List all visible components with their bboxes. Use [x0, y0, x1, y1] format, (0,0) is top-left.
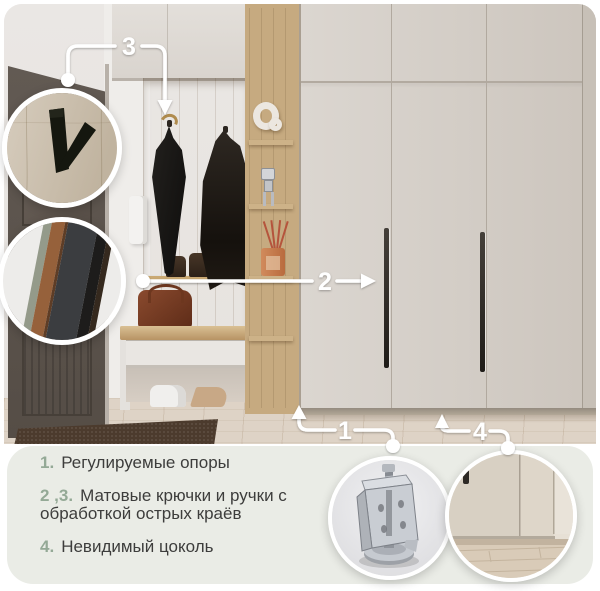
robot-figurine: [264, 180, 273, 192]
plinth-image: [449, 454, 573, 578]
legend-list: 1.Регулируемые опоры 2 ,3.Матовые крючки…: [40, 454, 290, 556]
product-infographic: 1.Регулируемые опоры 2 ,3.Матовые крючки…: [0, 0, 600, 591]
legend-text-2-3: Матовые крючки и ручки с обработкой остр…: [40, 486, 287, 523]
under-bench-shadow: [126, 368, 249, 402]
handle-edge-image: [3, 222, 121, 340]
intercom: [129, 196, 147, 244]
legend-text-4: Невидимый цоколь: [61, 537, 213, 556]
legend-item-1: 1.Регулируемые опоры: [40, 454, 290, 472]
robot-figurine: [261, 168, 275, 180]
legend-num-2-3: 2 ,3.: [40, 486, 73, 505]
wardrobe-top-divider: [301, 81, 596, 83]
legend-item-4: 4.Невидимый цоколь: [40, 538, 290, 556]
wardrobe-handle: [384, 228, 389, 368]
inset-plinth-closeup: [445, 450, 577, 582]
wardrobe-end-panel: [582, 4, 596, 412]
cabinet-seam: [167, 4, 168, 81]
floor-shadow: [301, 415, 596, 423]
robot-figurine: [263, 192, 274, 206]
leather-bag: [138, 290, 192, 328]
sneakers: [150, 385, 186, 407]
wardrobe: [301, 4, 596, 414]
shelf: [249, 140, 293, 145]
upper-cabinets: [112, 4, 249, 81]
support-foot-image: [332, 460, 448, 576]
inset-support-foot-closeup: [328, 456, 452, 580]
inset-handle-edge-closeup: [0, 217, 126, 345]
legend-num-1: 1.: [40, 453, 54, 472]
bench-drawer: [126, 340, 249, 368]
wardrobe-door-seam: [391, 4, 392, 414]
open-shelf-column: [245, 4, 299, 414]
inset-hook-closeup: [2, 88, 122, 208]
reed-diffuser: [261, 248, 285, 276]
wardrobe-door-seam: [486, 4, 487, 414]
heels: [190, 387, 230, 407]
hook-closeup-image: [7, 93, 117, 203]
legend-text-1: Регулируемые опоры: [61, 453, 230, 472]
legend-num-4: 4.: [40, 537, 54, 556]
ring-vase: [269, 118, 282, 131]
wardrobe-plinth-gap: [301, 408, 596, 415]
wardrobe-handle: [480, 232, 485, 372]
shelf: [249, 276, 293, 281]
shelf: [249, 336, 293, 341]
legend-item-2-3: 2 ,3.Матовые крючки и ручки с обработкой…: [40, 487, 290, 523]
bench-top: [120, 326, 249, 340]
